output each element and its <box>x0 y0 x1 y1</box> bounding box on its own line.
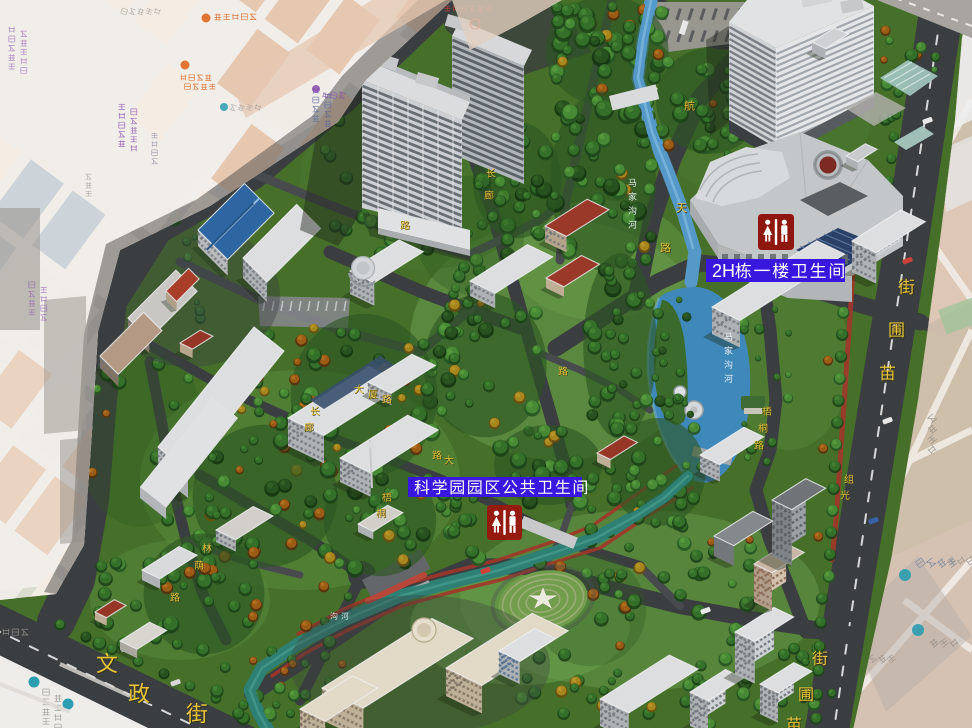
svg-text:2H: 2H <box>712 261 735 281</box>
